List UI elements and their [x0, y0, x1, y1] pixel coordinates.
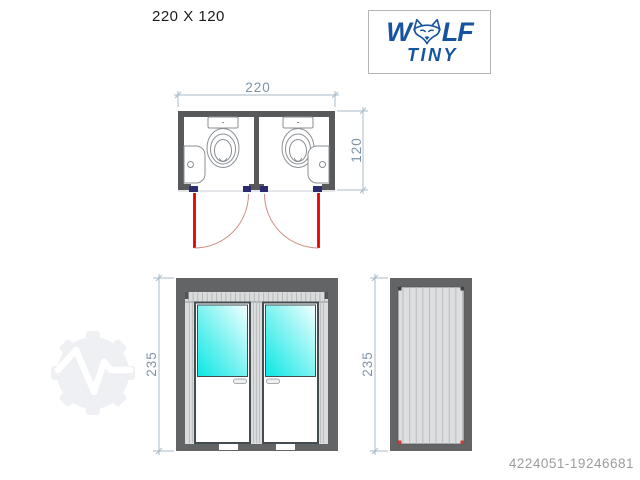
plan-depth-label: 120: [349, 137, 364, 163]
corrugation-ribs: [399, 287, 464, 444]
corrugation-top-strip: [186, 293, 327, 302]
door-glass-panel: [198, 305, 248, 377]
door-handle: [267, 379, 280, 384]
base-vent: [219, 444, 238, 450]
plan-depth-dimension: 120: [337, 107, 368, 194]
product-drawing-page: 220 X 120 W LF TINY: [0, 0, 640, 480]
washbasin-icon: [308, 146, 329, 183]
corner-detail: [398, 287, 402, 291]
listing-id: 4224051-19246681: [509, 456, 634, 471]
front-height-dimension: 235: [144, 274, 174, 455]
plan-view: 220 120: [130, 78, 380, 258]
front-elevation: 235: [140, 262, 350, 462]
swing-arc: [265, 194, 319, 248]
brand-letter-lf: LF: [442, 19, 473, 46]
brand-wordmark: W LF: [386, 19, 472, 47]
swing-arc: [195, 194, 249, 248]
side-height-label: 235: [360, 351, 375, 377]
brand-letter-w: W: [386, 19, 410, 46]
door-left: [195, 303, 250, 444]
door-glass-panel: [266, 305, 316, 377]
base-vent: [276, 444, 295, 450]
corner-detail: [325, 292, 329, 299]
page-title: 220 X 120: [152, 8, 225, 25]
corner-detail: [461, 287, 465, 291]
corner-detail-red: [461, 441, 465, 445]
toilet-icon: [207, 117, 239, 168]
wolf-head-icon: [412, 19, 442, 45]
door-handle: [234, 379, 247, 384]
washbasin-icon: [184, 146, 205, 183]
door-right: [263, 303, 318, 444]
door-swing-left: [195, 193, 249, 248]
brand-subtitle: TINY: [401, 45, 458, 66]
corner-detail: [185, 292, 189, 299]
gear-pulse-icon: [40, 320, 150, 430]
corner-detail-red: [398, 441, 402, 445]
side-height-dimension: 235: [360, 274, 388, 455]
brand-logo: W LF TINY: [368, 10, 491, 74]
front-height-label: 235: [144, 351, 159, 377]
plan-width-dimension: 220: [174, 80, 339, 107]
side-elevation: 235: [355, 262, 480, 462]
door-swing-right: [265, 193, 319, 248]
plan-width-label: 220: [245, 80, 271, 95]
